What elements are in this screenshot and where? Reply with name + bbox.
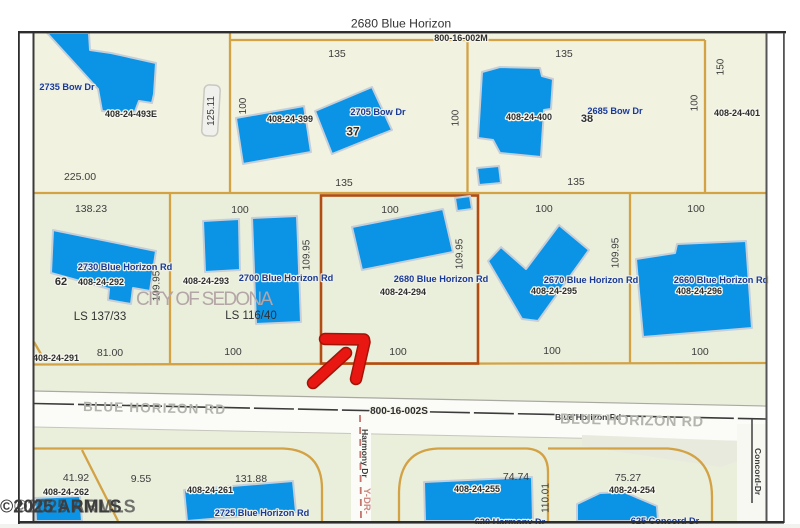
svg-text:Harmony Dr: Harmony Dr	[360, 429, 370, 478]
svg-text:2725 Blue Horizon Rd: 2725 Blue Horizon Rd	[215, 508, 309, 518]
svg-text:74.74: 74.74	[503, 471, 529, 483]
svg-text:2685 Bow Dr: 2685 Bow Dr	[587, 106, 643, 116]
svg-text:100: 100	[691, 346, 709, 358]
svg-text:100: 100	[238, 97, 249, 114]
svg-text:408-24-294: 408-24-294	[380, 287, 426, 297]
svg-text:225.00: 225.00	[64, 171, 96, 183]
svg-text:408-24-291: 408-24-291	[33, 353, 79, 363]
svg-text:2670 Blue Horizon Rd: 2670 Blue Horizon Rd	[544, 275, 638, 285]
svg-text:408-24-262: 408-24-262	[43, 487, 89, 497]
svg-text:2730 Blue Horizon Rd: 2730 Blue Horizon Rd	[78, 262, 172, 272]
svg-text:100: 100	[687, 203, 705, 215]
svg-text:100: 100	[381, 204, 399, 216]
svg-text:135: 135	[335, 177, 353, 189]
svg-text:408-24-261: 408-24-261	[187, 485, 233, 495]
svg-text:9.55: 9.55	[131, 473, 152, 485]
svg-text:CITY OF SEDONA: CITY OF SEDONA	[136, 289, 273, 310]
svg-text:100: 100	[543, 345, 561, 357]
svg-text:110.01: 110.01	[541, 483, 552, 513]
svg-text:131.88: 131.88	[235, 473, 267, 485]
svg-text:408-24-295: 408-24-295	[531, 286, 577, 296]
svg-text:150: 150	[716, 58, 727, 75]
svg-text:135: 135	[555, 48, 573, 60]
svg-text:408-24-255: 408-24-255	[454, 484, 500, 494]
svg-text:81.00: 81.00	[97, 347, 123, 359]
svg-text:408-24-296: 408-24-296	[676, 286, 722, 296]
svg-text:800-16-002M: 800-16-002M	[434, 33, 488, 43]
svg-text:408-24-399: 408-24-399	[267, 114, 313, 124]
svg-text:800-16-002S: 800-16-002S	[370, 406, 428, 417]
svg-text:2680 Blue Horizon Rd: 2680 Blue Horizon Rd	[394, 274, 488, 284]
svg-text:135: 135	[328, 48, 346, 60]
svg-text:138.23: 138.23	[75, 203, 107, 215]
svg-text:109.95: 109.95	[302, 239, 313, 270]
svg-text:109.95: 109.95	[455, 238, 466, 269]
svg-text:©2025 ARMLS: ©2025 ARMLS	[14, 497, 136, 517]
svg-text:2680 Blue Horizon: 2680 Blue Horizon	[351, 17, 451, 31]
svg-text:125.11: 125.11	[206, 96, 217, 126]
svg-text:100: 100	[690, 94, 701, 111]
svg-text:BLUE HORIZON RD: BLUE HORIZON RD	[560, 412, 703, 431]
svg-text:408-24-293: 408-24-293	[183, 276, 229, 286]
svg-text:37: 37	[346, 125, 360, 139]
svg-text:Y-DR-: Y-DR-	[361, 488, 372, 514]
svg-text:100: 100	[535, 203, 553, 215]
svg-text:100: 100	[389, 346, 407, 358]
svg-text:109.95: 109.95	[611, 237, 622, 268]
svg-text:408-24-493E: 408-24-493E	[105, 109, 157, 119]
svg-text:2660 Blue Horizon Rd: 2660 Blue Horizon Rd	[674, 275, 768, 285]
svg-text:Concord-Dr: Concord-Dr	[753, 448, 763, 496]
svg-text:408-24-400: 408-24-400	[506, 112, 552, 122]
svg-text:BLUE HORIZON RD: BLUE HORIZON RD	[83, 399, 226, 417]
svg-text:100: 100	[224, 346, 242, 358]
svg-text:135: 135	[567, 176, 585, 188]
svg-text:2700 Blue Horizon Rd: 2700 Blue Horizon Rd	[239, 273, 333, 283]
svg-text:2705 Bow Dr: 2705 Bow Dr	[350, 107, 406, 117]
svg-text:2735 Bow Dr: 2735 Bow Dr	[39, 82, 95, 92]
svg-text:408-24-401: 408-24-401	[714, 108, 760, 118]
svg-text:41.92: 41.92	[63, 472, 89, 484]
svg-text:100: 100	[451, 109, 462, 126]
svg-text:75.27: 75.27	[615, 472, 641, 484]
svg-text:LS 116/40: LS 116/40	[225, 310, 277, 322]
svg-text:408-24-292: 408-24-292	[78, 277, 124, 287]
svg-text:LS 137/33: LS 137/33	[74, 311, 126, 323]
svg-text:100: 100	[231, 204, 249, 216]
svg-text:62: 62	[55, 276, 67, 288]
svg-text:408-24-254: 408-24-254	[609, 485, 655, 495]
